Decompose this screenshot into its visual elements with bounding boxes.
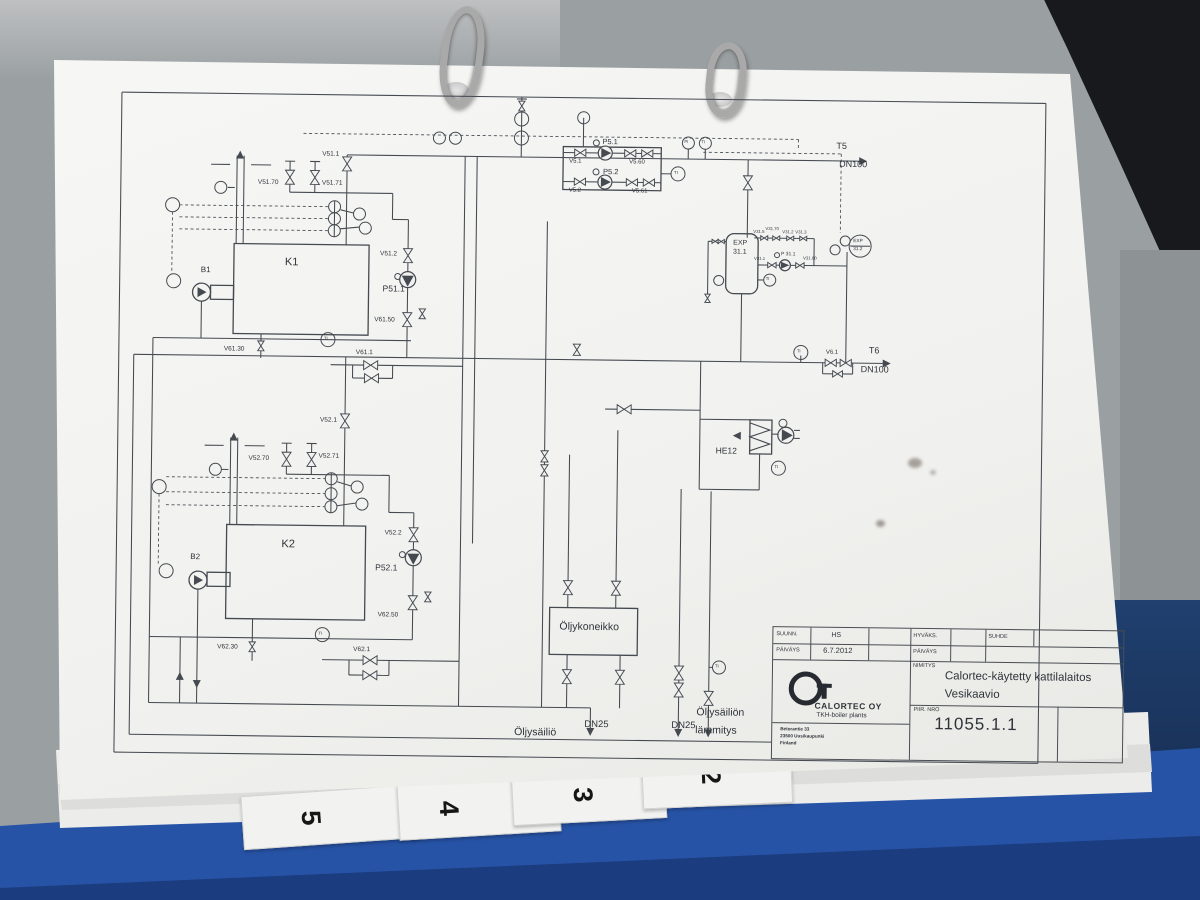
diagram-label: TI	[674, 171, 678, 175]
diagram-label: TI	[701, 140, 705, 144]
diagram-label: DN100	[861, 365, 889, 374]
diagram-label: V31.2	[782, 230, 793, 234]
diagram-label: V31.5	[753, 230, 764, 234]
diagram-label: Öljykoneikko	[559, 622, 619, 633]
diagram-label: V31.3	[795, 230, 806, 234]
diagram-label: V61.50	[374, 317, 395, 324]
diagram-label: 31.1	[733, 249, 747, 256]
diagram-label: Öljysäiliö	[514, 727, 556, 738]
diagram-label: TI	[774, 465, 778, 469]
diagram-label: B2	[190, 553, 200, 561]
company-address-1: Betorantie 33	[780, 727, 809, 732]
process-diagram: K1K2B1B2V51.1V51.70V51.71V51.2P51.1V61.5…	[0, 0, 1200, 900]
diagram-label: P5.2	[603, 168, 619, 176]
company-address-2: 23500 Uusikaupunki	[780, 734, 824, 739]
project-title: Calortec-käytetty kattilalaitos	[945, 671, 1092, 684]
diagram-label: V52.71	[318, 454, 339, 461]
diagram-label: V51.1	[322, 152, 339, 159]
photo-of-binder-diagram: { "binder": { "tabs": ["5", "4", "3", "2…	[0, 0, 1200, 900]
diagram-label: TI	[324, 337, 328, 341]
company-name: CALORTEC OY	[814, 702, 881, 711]
diagram-label: P 31.1	[781, 252, 795, 257]
field-value-paivays: 6.7.2012	[823, 647, 852, 655]
diagram-label: TI	[715, 664, 719, 668]
field-label-nimitys: NIMITYS	[913, 664, 935, 670]
diagram-label: K1	[285, 257, 299, 268]
diagram-label: DN25	[584, 720, 608, 730]
diagram-label: Öljysäiliön	[696, 707, 744, 718]
diagram-label: P52.1	[375, 563, 397, 572]
diagram-label: V31.60	[803, 256, 817, 260]
diagram-label: V51.71	[322, 181, 343, 188]
company-address-3: Finland	[780, 741, 796, 746]
diagram-label: V61.1	[356, 350, 373, 357]
diagram-label: V51.70	[258, 180, 279, 187]
diagram-label: DN25	[671, 721, 695, 731]
field-label-hyvaks-paivays: PÄIVÄYS	[913, 650, 937, 656]
diagram-label: V5.1	[569, 159, 581, 165]
field-label-paivays: PÄIVÄYS	[776, 648, 800, 654]
field-label-suunn: SUUNN.	[776, 632, 797, 638]
diagram-label: 31.2	[853, 248, 862, 253]
diagram-label: TI	[318, 632, 322, 636]
diagram-label: EXP	[853, 240, 863, 245]
diagram-label: TI	[797, 349, 801, 353]
diagram-label: HE12	[716, 446, 737, 455]
diagram-label: DN100	[839, 160, 867, 169]
diagram-label: V31.70	[765, 227, 779, 231]
diagram-label: T6	[869, 346, 880, 355]
diagram-label: lämmitys	[695, 725, 737, 736]
diagram-label: T5	[836, 142, 847, 151]
diagram-labels-layer: K1K2B1B2V51.1V51.70V51.71V51.2P51.1V61.5…	[0, 0, 1200, 900]
diagram-label: V5.2	[569, 188, 581, 194]
diagram-label: V62.30	[217, 644, 238, 651]
diagram-label: TI	[766, 277, 770, 281]
calortec-logo-icon	[822, 684, 827, 699]
diagram-label: V5.61	[632, 188, 648, 194]
diagram-label: K2	[281, 539, 295, 550]
diagram-label: V6.1	[826, 350, 838, 356]
diagram-label: V61.30	[224, 346, 245, 353]
field-label-suhde: SUHDE	[988, 635, 1007, 641]
title-block: SUUNN. HS HYVÄKS. SUHDE PÄIVÄYS 6.7.2012…	[771, 626, 1125, 763]
company-subtitle: TKH-boiler plants	[816, 713, 866, 720]
field-label-piir-nro: PIIR. NRO	[913, 708, 939, 714]
diagram-label: B1	[201, 266, 211, 274]
diagram-label: V5.60	[629, 159, 645, 165]
diagram-label: V52.1	[320, 418, 337, 425]
diagram-label: V51.2	[380, 251, 397, 258]
diagram-label: PI	[684, 140, 688, 144]
diagram-label: EXP	[733, 240, 747, 247]
field-value-suunn: HS	[831, 632, 841, 639]
diagram-label: P51.1	[383, 284, 405, 293]
diagram-label: V62.50	[378, 612, 399, 619]
drawing-number: 11055.1.1	[934, 715, 1018, 733]
diagram-label: V52.2	[385, 530, 402, 537]
field-label-hyvaks: HYVÄKS.	[913, 634, 937, 640]
diagram-label: V52.70	[248, 456, 269, 463]
diagram-label: V31.1	[754, 257, 765, 261]
drawing-title: Vesikaavio	[945, 689, 1000, 701]
diagram-label: V62.1	[353, 647, 370, 654]
diagram-label: P5.1	[602, 138, 618, 146]
